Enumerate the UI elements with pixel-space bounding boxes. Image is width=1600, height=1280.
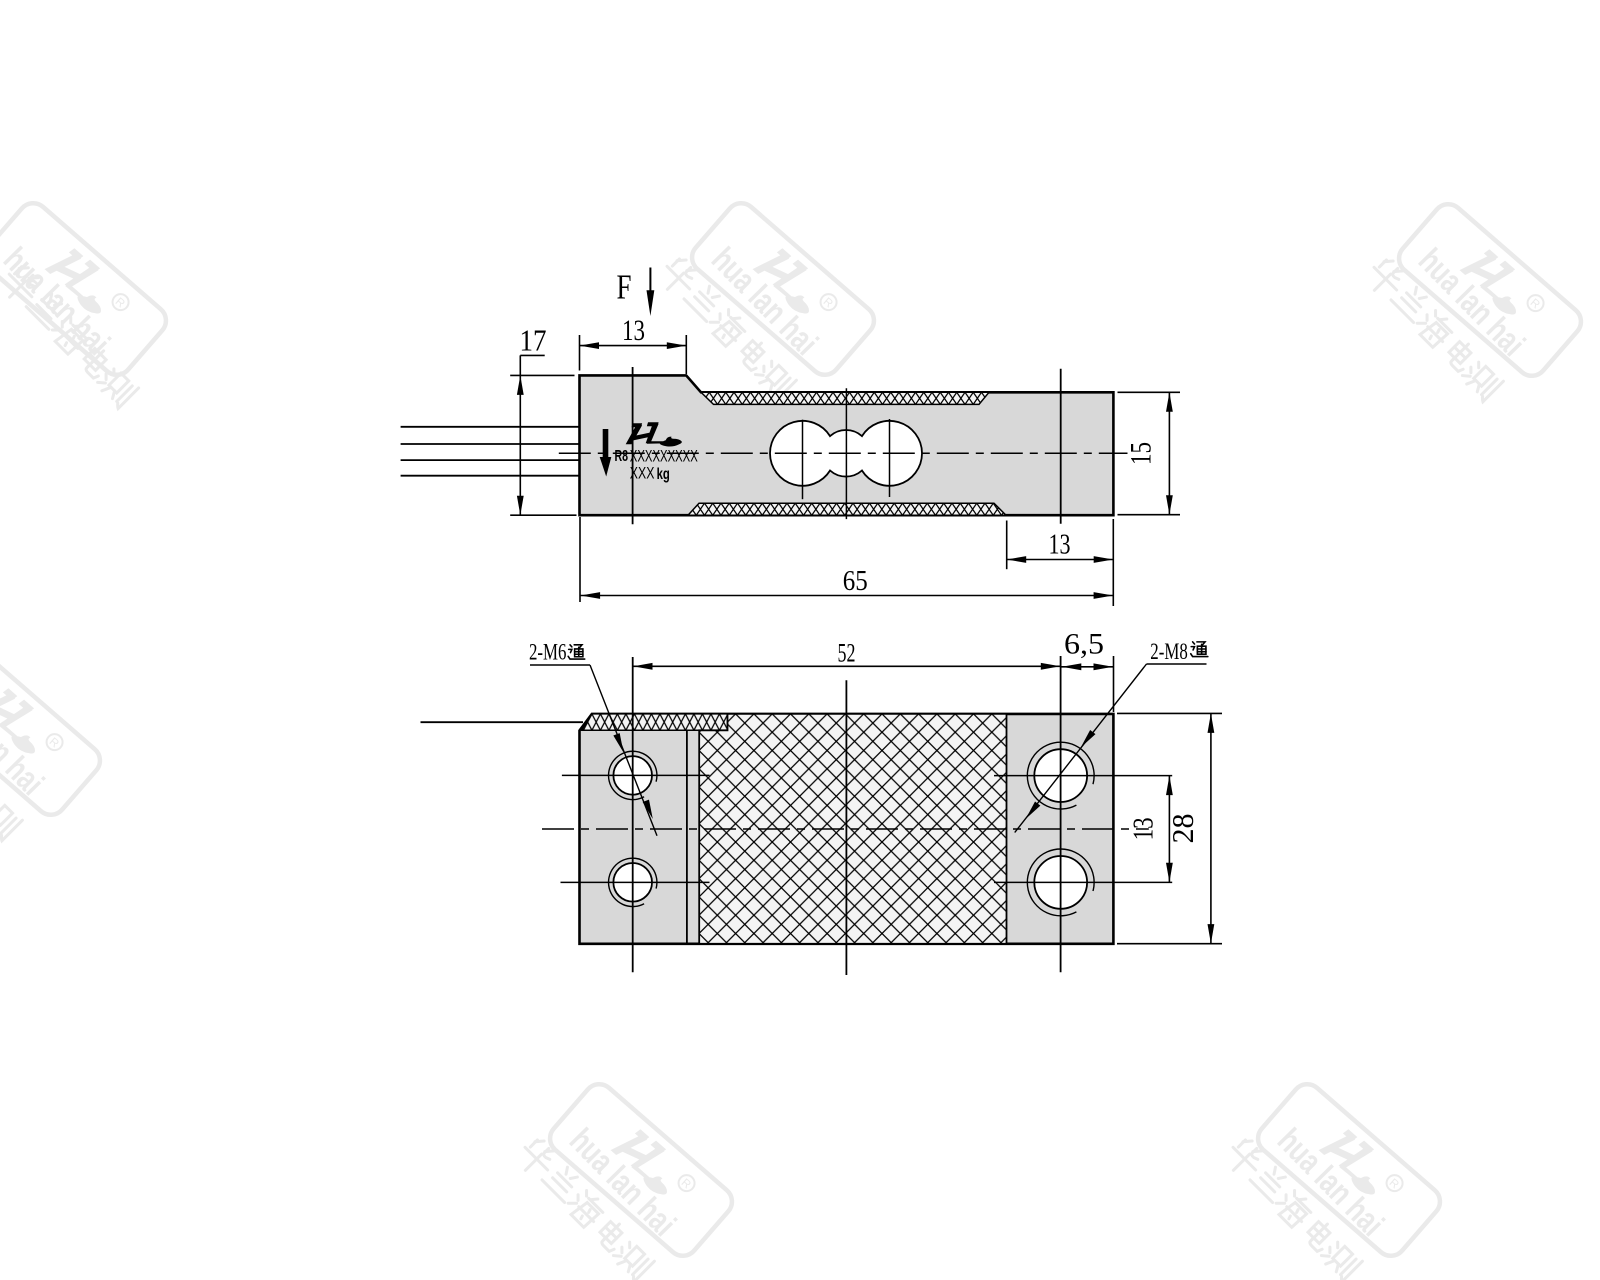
svg-text:13: 13	[622, 314, 645, 347]
svg-text:R8: R8	[615, 448, 629, 465]
svg-text:XXXXXXXXX: XXXXXXXXX	[630, 447, 698, 465]
svg-text:2-M6: 2-M6	[529, 639, 567, 665]
svg-text:65: 65	[843, 566, 868, 597]
svg-text:F: F	[617, 268, 632, 307]
svg-text:13: 13	[1049, 529, 1071, 560]
svg-text:17: 17	[520, 323, 547, 358]
svg-text:XXX: XXX	[630, 464, 655, 482]
svg-text:15: 15	[1125, 442, 1158, 465]
svg-text:52: 52	[838, 639, 856, 668]
svg-text:kg: kg	[657, 466, 670, 483]
svg-text:6,5: 6,5	[1064, 628, 1104, 661]
svg-text:2-M8: 2-M8	[1150, 639, 1188, 665]
svg-text:28: 28	[1165, 814, 1200, 844]
svg-text:13: 13	[1128, 817, 1159, 840]
